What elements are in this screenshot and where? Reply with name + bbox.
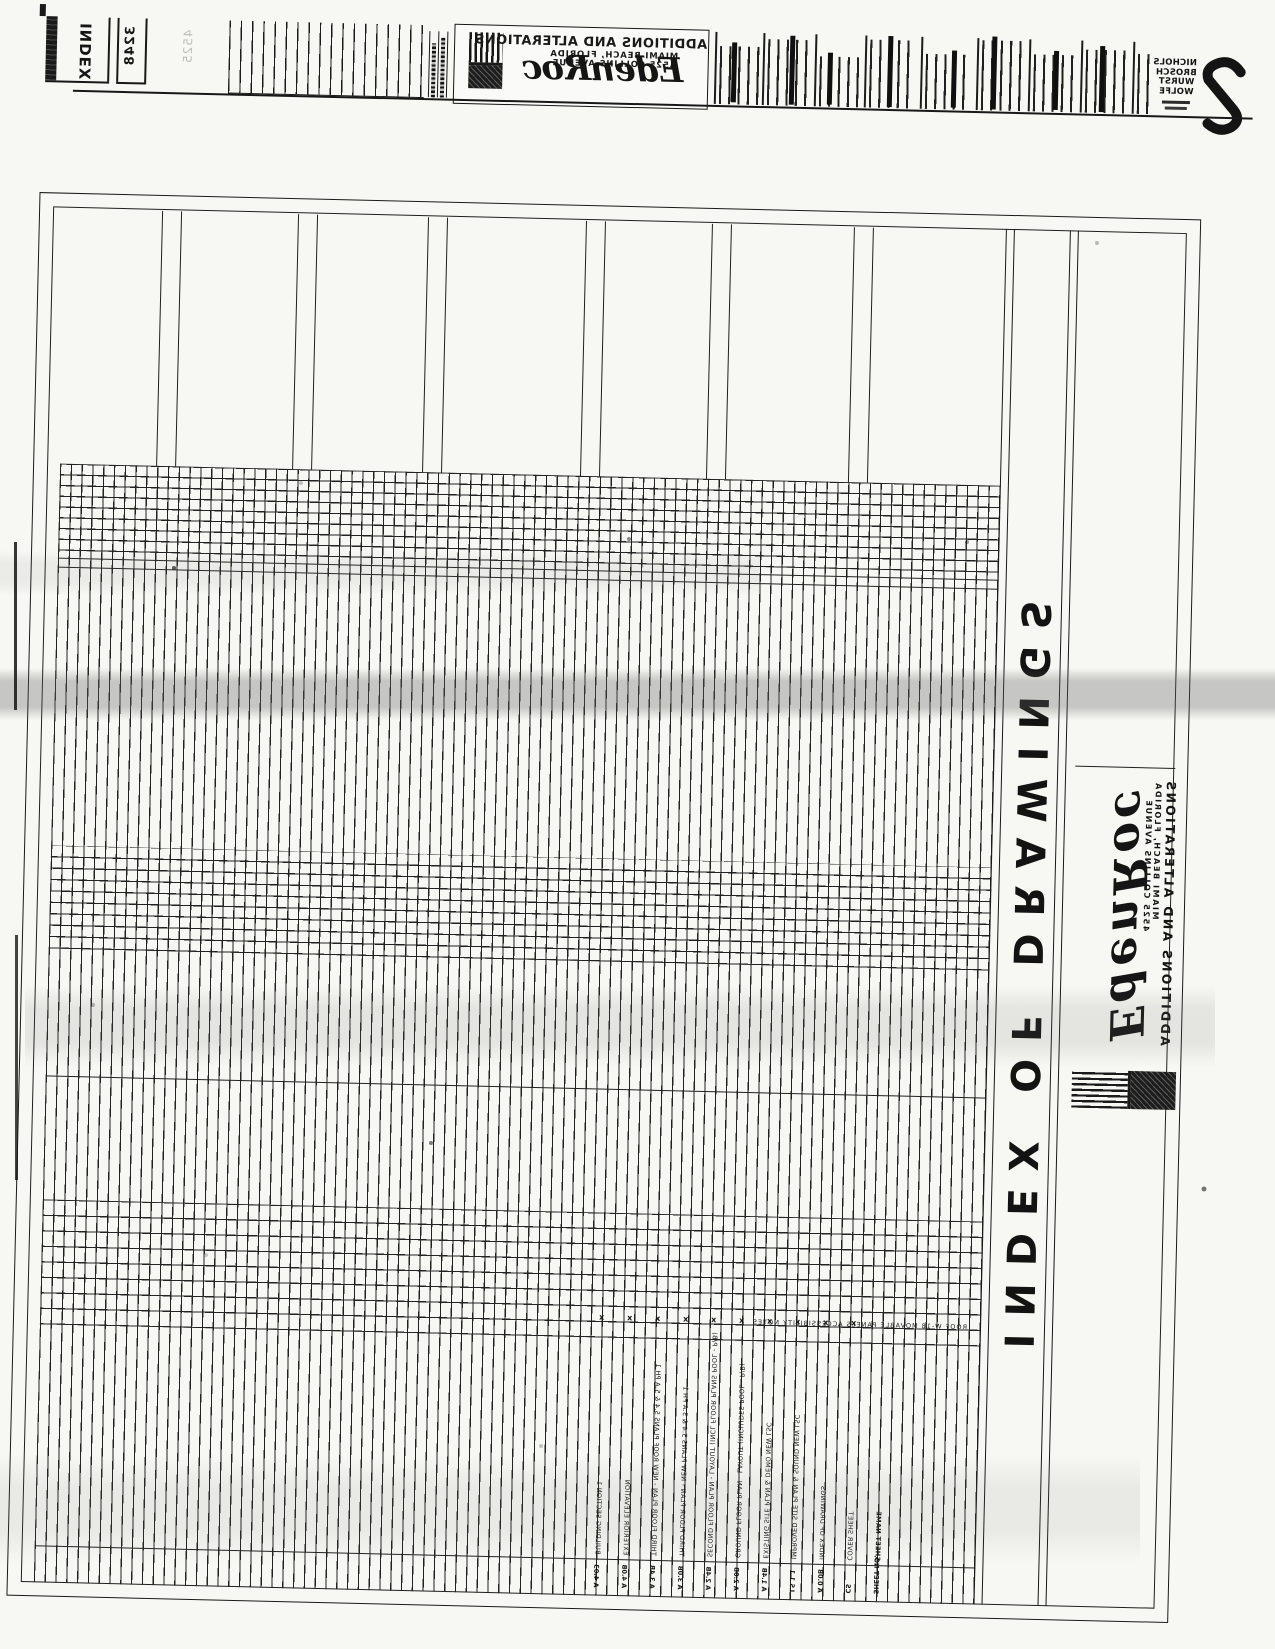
tag-text-bar-1 (431, 43, 436, 97)
sheet-number: SHEET NO. (872, 1555, 881, 1594)
revision-x-mark: x (655, 1314, 660, 1323)
revision-x-mark: x (767, 1316, 772, 1325)
sheet-name: INDEX OF DRAWINGS (817, 1486, 828, 1560)
stamp-block: ADDITIONS AND ALTERATIONS MIAMI BEACH, F… (1067, 748, 1180, 1050)
revision-x-mark: x (711, 1315, 716, 1324)
fine-print-column (869, 40, 915, 109)
scan-speckles (0, 0, 2, 2)
fine-print-column (719, 46, 760, 105)
index-tab-border (107, 18, 110, 82)
revision-x-mark: x (795, 1317, 800, 1326)
fine-print-divider (864, 35, 867, 107)
index-tab-bottom (45, 80, 109, 83)
fine-print-divider (1028, 39, 1031, 111)
scan-edge-mark (15, 935, 18, 1180)
table-row-lines (34, 464, 1001, 1605)
fine-print-column (819, 56, 860, 107)
fine-print-column (981, 40, 1023, 111)
sheet-number: A 2.4B (704, 1566, 713, 1590)
brand-signature: EdenRoc (500, 47, 706, 92)
building-logo-base (468, 65, 503, 89)
sheetno-box-left (116, 18, 119, 82)
revision-slots (228, 20, 426, 98)
revision-x-mark: x (739, 1316, 744, 1325)
fine-print-column (925, 54, 970, 110)
revision-x-mark: x (823, 1318, 828, 1327)
sheet-name: SHEET NAME (873, 1511, 883, 1561)
firm-fine-print-bar (1165, 107, 1187, 110)
revision-x-mark: x (851, 1318, 856, 1327)
revision-x-mark: x (683, 1315, 688, 1324)
sheet-name: COVER SHEET (845, 1511, 855, 1560)
fine-print-divider (920, 37, 923, 109)
revision-x-mark: x (627, 1313, 632, 1322)
drawing-sheet: ROOF W-18 MOVABLE PANELS ACCESSIBILITY N… (6, 192, 1201, 1623)
tilted-scan-layer: INDEX 3248 4525 ADDITIONS AND ALTERATION… (2, 2, 1258, 1649)
sheet-name: EXTERIOR ELEVATION (621, 1479, 632, 1555)
fine-print-column (1033, 54, 1074, 112)
scanned-drawing-index-page: INDEX 3248 4525 ADDITIONS AND ALTERATION… (0, 0, 1275, 1649)
firm-name-line: WOLFE (1156, 87, 1196, 97)
scan-edge-mark (14, 542, 17, 710)
stamp-building-logo-base (1130, 1071, 1176, 1110)
sheet-number: A 2.0B (732, 1567, 741, 1591)
faint-stamp-digits: 4525 (181, 29, 196, 64)
sheet-number: A 0.0B (816, 1569, 825, 1593)
stamp-building-logo (1071, 1070, 1176, 1110)
fine-print-column (1137, 54, 1154, 114)
fine-print-column (767, 39, 809, 106)
fine-print-divider (814, 34, 817, 106)
firm-name-block: NICHOLS BROSCH WURST WOLFE (1156, 58, 1197, 97)
strip-black-tab (45, 16, 58, 80)
sheet-name: BUILDING SECTION 1 (593, 1481, 604, 1555)
tag-text-bar-2 (440, 37, 445, 97)
fine-print-divider (714, 32, 717, 104)
sheet-number: LS 1.1 (788, 1569, 797, 1592)
fine-print-column (1085, 50, 1128, 114)
firm-n-logo-icon (1193, 49, 1249, 136)
fine-print-divider (1132, 42, 1135, 114)
sheetno-box-right (144, 18, 147, 82)
fine-print-divider (762, 33, 765, 105)
corner-mark (40, 4, 46, 16)
fine-print-divider (1080, 41, 1083, 113)
stamp-brand-signature: EdenRoc (1099, 785, 1159, 1041)
revision-x-mark: x (599, 1313, 604, 1322)
sheet-number: CS (844, 1584, 852, 1594)
fine-print-divider (976, 38, 979, 110)
sheet-number: A 3.0B (676, 1566, 685, 1590)
sheetno-box-bottom (116, 82, 146, 84)
stamp-building-logo-columns (1071, 1070, 1128, 1109)
sheet-number: A 3.4B (648, 1565, 657, 1589)
sheet-number-label: 3248 (123, 26, 139, 67)
sheet-number: A 1.4B (760, 1568, 769, 1592)
tag-line-3 (446, 32, 449, 98)
sheet-number: A 4.03 (592, 1564, 601, 1588)
index-tab-label: INDEX (76, 23, 95, 81)
sheet-number: A 4.0B (620, 1564, 629, 1588)
firm-fine-print-bar (1162, 100, 1190, 104)
